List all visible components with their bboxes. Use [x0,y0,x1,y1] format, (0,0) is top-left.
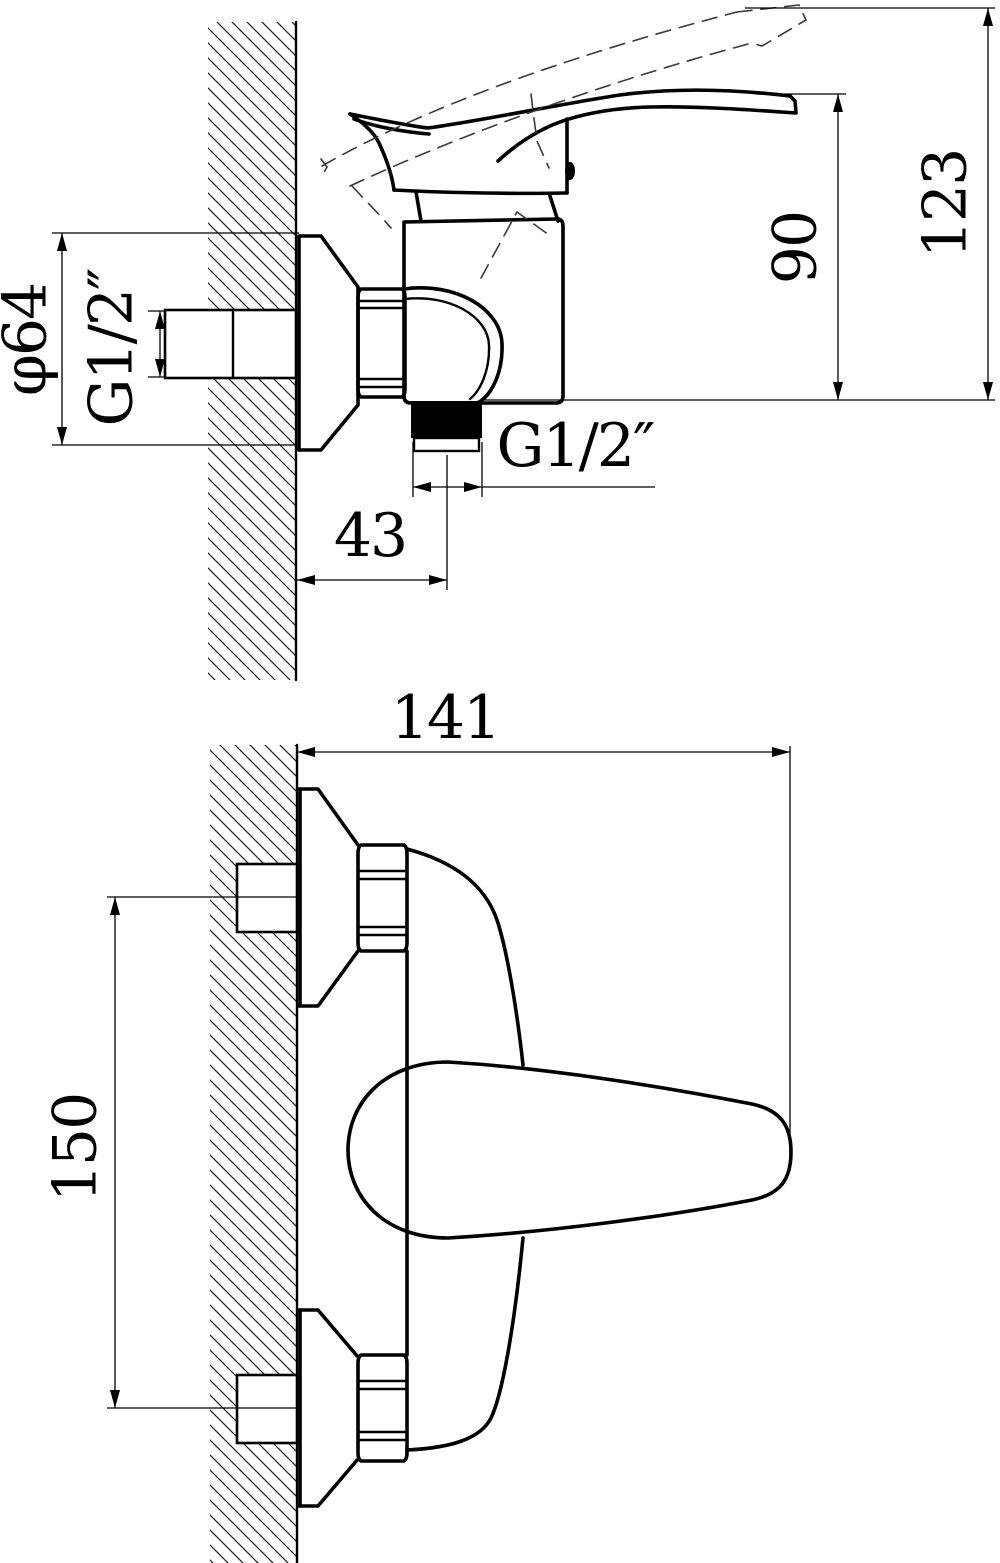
dim-43-label: 43 [334,501,406,571]
lower-nut [358,1355,407,1461]
neck-right-line [550,196,558,221]
drawing-page: φ64 G1/2″ 43 G1/2″ 90 123 [0,0,1000,1563]
arrowhead [983,382,993,400]
wall-inlet-pipe [165,310,296,378]
outlet-elbow-inner-arc [405,298,489,399]
faucet-technical-drawing: φ64 G1/2″ 43 G1/2″ 90 123 [0,0,1000,1563]
connection-nut-side-view [358,289,405,397]
body-right-edge-lower [407,1238,523,1450]
arrowhead [413,482,431,492]
arrowhead [464,482,482,492]
arrowhead [983,8,993,26]
arrowhead [110,897,120,915]
dim-90-label: 90 [761,212,831,284]
lower-escutcheon [299,1310,358,1506]
handle-lever-bottom-edge [498,96,796,161]
raised-handle-dashed-end [737,5,806,46]
dim-g12-wall-label: G1/2″ [77,269,147,426]
raised-handle-dashed-arc [352,186,391,228]
escutcheon-side-view [299,236,358,450]
plan-view: 141 150 [41,683,791,1563]
arrowhead [155,359,165,377]
dim-phi64-label: φ64 [0,284,61,396]
dim-g12-outlet-label: G1/2″ [497,411,654,481]
arrowhead [57,233,67,251]
lower-inlet-pipe [237,1375,297,1443]
arrowhead [772,747,790,757]
arrowhead [57,427,67,445]
outlet-thread-relief [414,438,479,451]
outlet-thread-black [411,401,482,438]
mixer-body-side-view [404,219,563,403]
side-view: φ64 G1/2″ 43 G1/2″ 90 123 [0,5,995,680]
arrowhead [155,311,165,329]
arrowhead [429,575,447,585]
arrowhead [110,1390,120,1408]
upper-inlet-pipe [237,864,297,932]
handle-set-screw [565,162,575,180]
handle-cap-bottom-edge [394,190,567,193]
raised-handle-dashed-pivot [321,159,327,178]
arrowhead [297,747,315,757]
raised-handle-dashed-bottom [350,43,752,186]
dim-141-label: 141 [391,683,500,753]
arrowhead [833,94,843,112]
arrowhead [833,382,843,400]
handle-knob-plan [348,1062,791,1238]
body-right-edge-upper [407,849,523,1065]
dim-123-label: 123 [911,150,981,259]
dim-150-label: 150 [41,1094,111,1203]
upper-escutcheon [299,789,358,1006]
arrowhead [297,575,315,585]
neck-left-line [416,192,421,221]
